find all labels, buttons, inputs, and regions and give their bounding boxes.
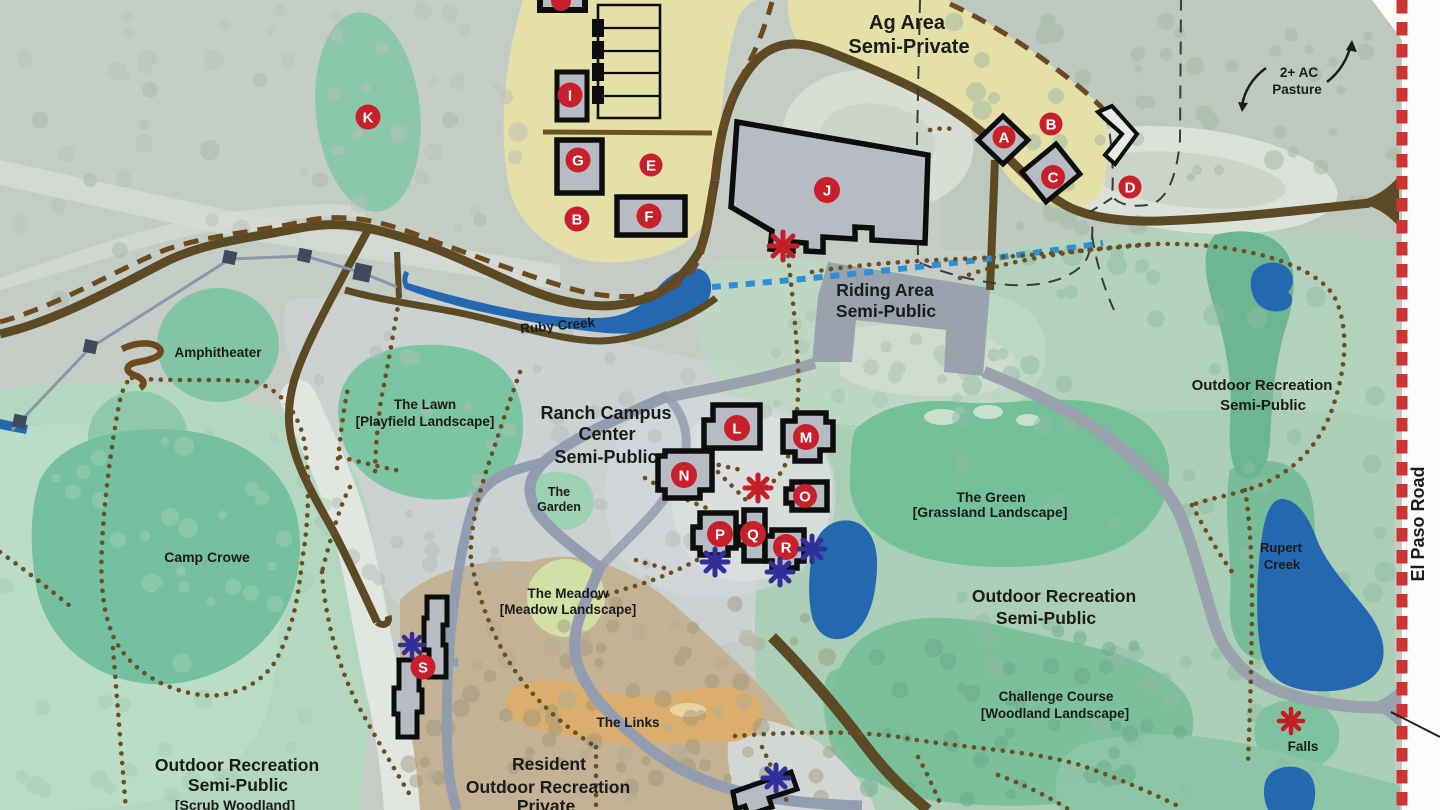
- svg-text:[Playfield Landscape]: [Playfield Landscape]: [356, 414, 495, 429]
- svg-text:E: E: [646, 158, 656, 175]
- svg-text:Resident: Resident: [512, 754, 586, 774]
- svg-text:I: I: [568, 88, 572, 105]
- svg-text:M: M: [800, 430, 813, 447]
- svg-text:Garden: Garden: [537, 500, 581, 514]
- svg-text:[Meadow Landscape]: [Meadow Landscape]: [500, 602, 637, 617]
- svg-text:Q: Q: [747, 527, 759, 544]
- svg-text:The Lawn: The Lawn: [394, 397, 456, 412]
- svg-text:Ranch Campus: Ranch Campus: [540, 403, 671, 423]
- svg-text:The Meadow: The Meadow: [527, 586, 609, 601]
- svg-text:Ag Area: Ag Area: [869, 12, 946, 34]
- svg-text:Amphitheater: Amphitheater: [174, 345, 262, 360]
- svg-text:Camp Crowe: Camp Crowe: [164, 549, 250, 565]
- svg-text:Center: Center: [578, 424, 635, 444]
- svg-text:[Woodland Landscape]: [Woodland Landscape]: [981, 706, 1129, 721]
- svg-text:K: K: [363, 110, 374, 127]
- svg-text:N: N: [679, 468, 690, 485]
- svg-text:Semi-Public: Semi-Public: [996, 608, 1096, 628]
- svg-text:El Paso Road: El Paso Road: [1408, 466, 1428, 581]
- svg-text:P: P: [715, 527, 725, 544]
- svg-text:Semi-Public: Semi-Public: [188, 775, 288, 795]
- svg-text:F: F: [644, 209, 653, 226]
- svg-text:Outdoor Recreation: Outdoor Recreation: [972, 586, 1136, 606]
- svg-text:J: J: [823, 183, 831, 200]
- svg-text:The: The: [548, 485, 570, 499]
- svg-text:Semi-Private: Semi-Private: [848, 36, 969, 58]
- svg-text:G: G: [572, 153, 584, 170]
- svg-text:O: O: [799, 489, 811, 506]
- svg-text:S: S: [418, 660, 428, 677]
- svg-text:B: B: [572, 212, 583, 229]
- svg-text:Semi-Public: Semi-Public: [836, 301, 936, 321]
- svg-text:Outdoor Recreation: Outdoor Recreation: [155, 755, 319, 775]
- svg-text:C: C: [1048, 170, 1059, 187]
- svg-text:A: A: [999, 130, 1010, 147]
- svg-text:2+ AC: 2+ AC: [1280, 65, 1318, 80]
- svg-text:Creek: Creek: [1264, 557, 1301, 572]
- svg-text:B: B: [1046, 117, 1057, 134]
- svg-text:The Green: The Green: [956, 489, 1025, 505]
- svg-text:Semi-Public: Semi-Public: [1220, 397, 1306, 414]
- svg-text:D: D: [1125, 180, 1136, 197]
- svg-text:L: L: [732, 421, 741, 438]
- svg-text:Outdoor Recreation: Outdoor Recreation: [1192, 377, 1333, 394]
- svg-text:Challenge Course: Challenge Course: [999, 689, 1114, 704]
- svg-text:Pasture: Pasture: [1272, 82, 1322, 97]
- svg-text:[Scrub Woodland]: [Scrub Woodland]: [175, 797, 295, 810]
- svg-text:Rupert: Rupert: [1260, 540, 1303, 555]
- svg-text:[Grassland Landscape]: [Grassland Landscape]: [913, 504, 1068, 520]
- svg-text:Private: Private: [517, 796, 576, 810]
- svg-text:Outdoor Recreation: Outdoor Recreation: [466, 777, 630, 797]
- svg-text:R: R: [781, 540, 792, 557]
- svg-text:Falls: Falls: [1288, 739, 1319, 754]
- svg-text:The Links: The Links: [596, 715, 659, 730]
- svg-text:Semi-Public: Semi-Public: [554, 447, 657, 467]
- svg-text:Riding Area: Riding Area: [836, 280, 934, 300]
